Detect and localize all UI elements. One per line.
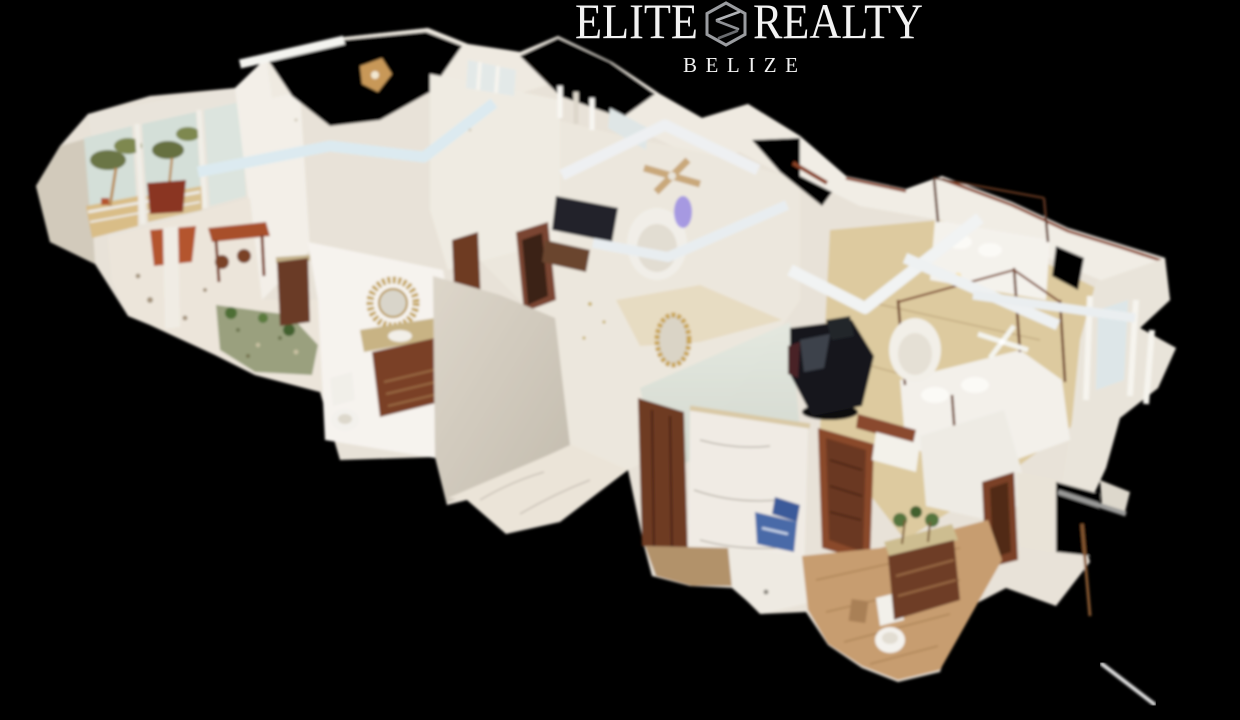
ensuite-bathroom-wing bbox=[638, 398, 1030, 680]
scan-noise-streak bbox=[1102, 664, 1154, 704]
dollhouse-3d-view[interactable] bbox=[0, 0, 1240, 720]
marble-shower-pan bbox=[728, 548, 812, 614]
palm-fronds bbox=[90, 150, 126, 170]
plant bbox=[225, 307, 237, 319]
shower-drain bbox=[764, 590, 769, 595]
white-post bbox=[163, 226, 180, 329]
purple-glow bbox=[674, 196, 692, 228]
wood-floor-a bbox=[645, 546, 736, 586]
gold-framed-mirror bbox=[657, 315, 689, 365]
red-armchair bbox=[147, 180, 186, 214]
tour-viewer: ELITE REALTY BELIZE bbox=[0, 0, 1240, 720]
floor-mat bbox=[849, 599, 869, 623]
dark-wood-door-left bbox=[638, 398, 688, 560]
vanity-sink bbox=[388, 330, 412, 342]
tail-wall bbox=[1016, 472, 1056, 552]
hall-bathroom bbox=[308, 242, 452, 458]
bar-stool bbox=[215, 255, 229, 269]
wood-cabinet bbox=[277, 258, 310, 326]
toilet-tank bbox=[330, 372, 355, 406]
sunroom-wing bbox=[36, 58, 345, 392]
bar-stool bbox=[237, 249, 251, 263]
